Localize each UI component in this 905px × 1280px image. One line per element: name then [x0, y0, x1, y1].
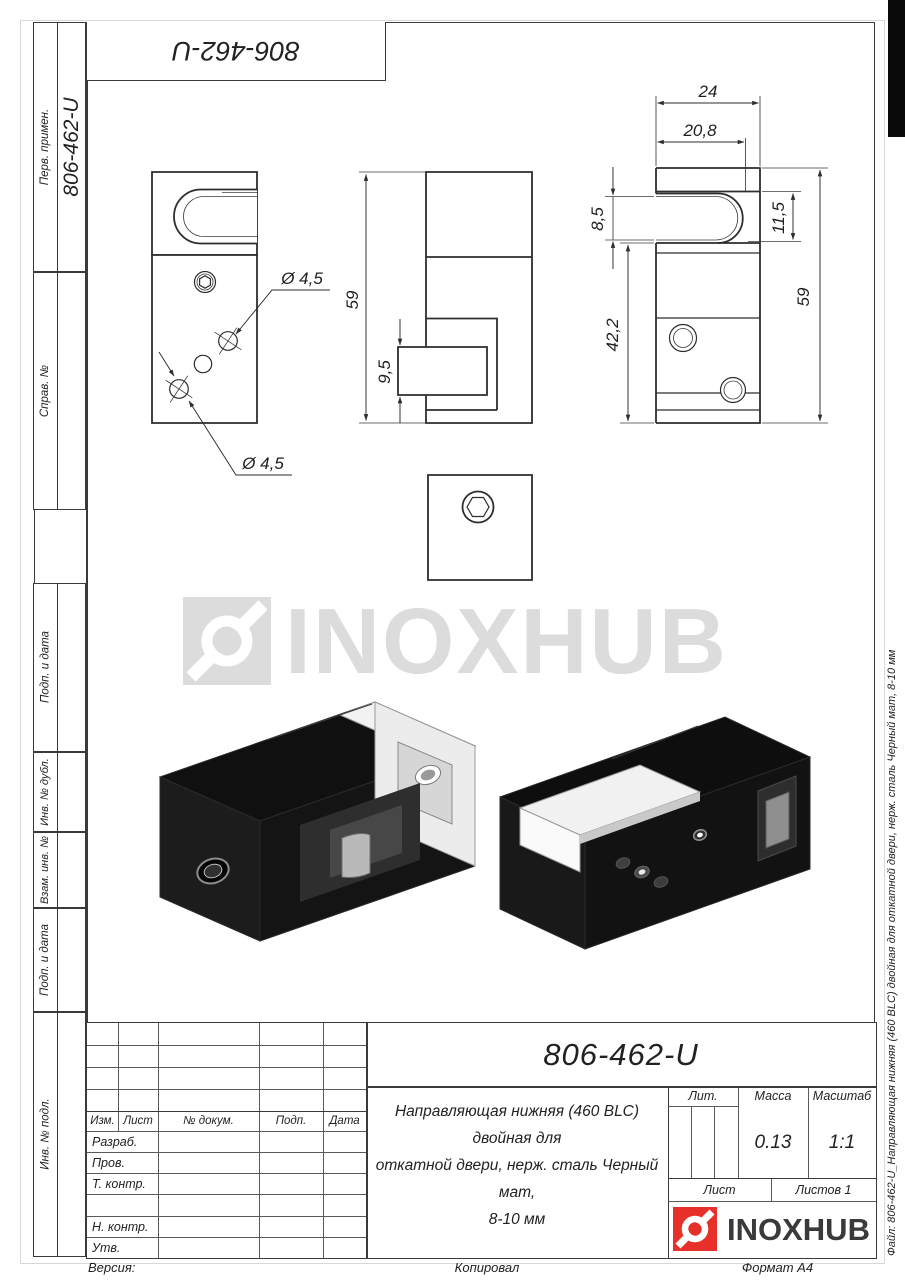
tb-row-razrab: Разраб.: [87, 1131, 158, 1152]
tb-row-prov: Пров.: [87, 1152, 158, 1173]
stamp-label-sprav: Справ. №: [33, 272, 57, 510]
stamp-label-vzam-inv: Взам. инв. №: [33, 832, 57, 908]
tb-row-nkontr: Н. контр.: [87, 1216, 158, 1237]
tb-row-utv: Утв.: [87, 1237, 158, 1258]
title-block: Изм. Лист № докум. Подп. Дата Разраб. Пр…: [86, 1022, 877, 1259]
tb-header-list: Лист: [118, 1111, 158, 1131]
top-designation-box: 806-462-U: [87, 22, 386, 81]
stamp-label-podp-data-1: Подп. и дата: [34, 583, 58, 752]
stamp-label-inv-podl: Инв. № подл.: [34, 1012, 58, 1257]
inoxhub-logo-icon: [673, 1207, 717, 1251]
tb-row-tkontr: Т. контр.: [87, 1173, 158, 1194]
tb-masshtab-label: Масштаб: [808, 1086, 876, 1106]
tb-massa-value: 0.13: [738, 1113, 808, 1173]
inoxhub-logo-text: INOXHUB: [727, 1207, 870, 1251]
stamp-value-perv-primen: 806-462-U: [57, 22, 87, 272]
stamp-label-podp-data-2: Подп. и дата: [33, 908, 57, 1012]
tb-description-line1: Направляющая нижняя (460 BLC) двойная дл…: [366, 1098, 668, 1152]
stamp-label-perv-primen: Перв. примен.: [33, 22, 57, 272]
tb-designation: 806-462-U: [366, 1023, 876, 1086]
tb-lit-label: Лит.: [668, 1086, 738, 1106]
tb-description-line2: откатной двери, нерж. сталь Черный мат,: [366, 1152, 668, 1206]
tb-header-izm: Изм.: [87, 1111, 118, 1131]
tb-header-data: Дата: [323, 1111, 366, 1131]
tb-massa-label: Масса: [738, 1086, 808, 1106]
scrollbar-thumb[interactable]: [888, 0, 905, 137]
top-designation-text: 806-462-U: [87, 22, 385, 80]
tb-description: Направляющая нижняя (460 BLC) двойная дл…: [366, 1086, 668, 1258]
version-label: Версия:: [88, 1260, 135, 1275]
copied-label: Копировал: [427, 1260, 547, 1275]
tb-description-line3: 8-10 мм: [366, 1206, 668, 1233]
file-note: Файл: 806-462-U_Направляющая нижняя (460…: [886, 681, 898, 1256]
drawing-sheet: INOXHUB Ø 4,5: [0, 0, 905, 1280]
format-label: Формат А4: [720, 1260, 835, 1275]
tb-listov-label: Листов 1: [771, 1178, 876, 1201]
stamp-label-inv-dubl: Инв. № дубл.: [33, 752, 57, 832]
tb-masshtab-value: 1:1: [808, 1113, 876, 1173]
tb-header-podp: Подп.: [259, 1111, 323, 1131]
tb-list-label: Лист: [668, 1178, 771, 1201]
tb-header-ndokum: № докум.: [158, 1111, 259, 1131]
